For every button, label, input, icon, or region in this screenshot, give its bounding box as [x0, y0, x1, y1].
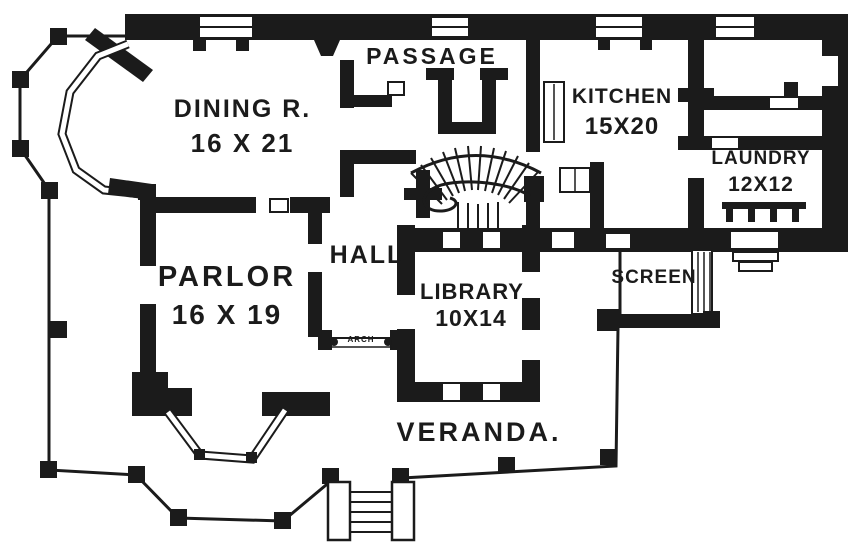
- kitchen-label: KITCHEN: [566, 86, 678, 108]
- dining-room-label: DINING R.: [150, 96, 335, 122]
- parlor-label: PARLOR: [142, 262, 312, 292]
- arch-label: ARCH: [336, 336, 386, 344]
- passage-label: PASSAGE: [352, 44, 512, 68]
- entrance-steps: [328, 482, 414, 540]
- hall-label: HALL: [326, 242, 408, 268]
- laundry-dims: 12X12: [702, 174, 820, 196]
- laundry-tubs: [722, 202, 806, 222]
- screen-label: SCREEN: [610, 268, 698, 288]
- kitchen-dims: 15X20: [566, 114, 678, 139]
- parlor-bay-window: [168, 410, 285, 463]
- veranda-label: VERANDA.: [388, 418, 570, 446]
- dining-bay-window: [62, 28, 156, 200]
- library-label: LIBRARY: [420, 280, 522, 303]
- rear-steps: [733, 252, 778, 271]
- floor-plan: PASSAGE DINING R. 16 X 21 KITCHEN 15X20 …: [0, 0, 855, 560]
- dining-room-dims: 16 X 21: [150, 130, 335, 157]
- library-dims: 10X14: [420, 306, 522, 330]
- parlor-dims: 16 X 19: [142, 300, 312, 329]
- lower-flight: [458, 202, 498, 230]
- screen-porch: [597, 250, 720, 331]
- laundry-label: LAUNDRY: [702, 149, 820, 169]
